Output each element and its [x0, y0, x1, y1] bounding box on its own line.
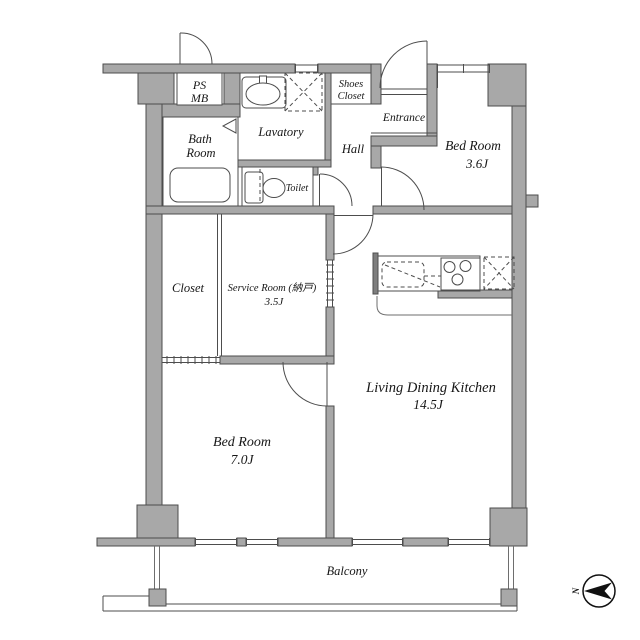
room-label-bedroom36-1: Bed Room [445, 138, 501, 153]
bathtub [170, 168, 230, 202]
bedroom7-door [283, 362, 327, 406]
room-label-hall: Hall [341, 142, 365, 156]
wall-toilet-right [313, 167, 318, 175]
floorplan-page: PS MB Bath Room Lavatory Shoes Closet Ha… [0, 0, 640, 640]
refrigerator-space [484, 257, 514, 289]
room-label-lavatory: Lavatory [257, 125, 304, 139]
room-label-shoes-1: Shoes [339, 79, 364, 90]
room-label-bedroom7-2: 7.0J [231, 452, 255, 467]
closet-sliding-door [162, 356, 220, 364]
washing-machine-space [285, 73, 322, 111]
wall-left [146, 104, 162, 538]
closet-divider [218, 214, 222, 356]
bedroom36-door [381, 167, 424, 210]
floorplan-drawing: PS MB Bath Room Lavatory Shoes Closet Ha… [0, 0, 640, 640]
balcony-structure [103, 546, 517, 611]
wall-lavatory-right [325, 73, 331, 167]
balcony-post-right [501, 589, 517, 606]
wall-bottom-c [278, 538, 352, 546]
kitchen-counter [373, 253, 514, 294]
washbasin-bowl [246, 83, 280, 105]
window-ldk-b [448, 538, 490, 546]
room-label-mb: MB [190, 91, 209, 105]
wall-right [512, 106, 526, 538]
balcony-post-left [149, 589, 166, 606]
entrance-door [380, 41, 427, 95]
room-label-entrance: Entrance [382, 112, 425, 124]
window-ldk-a [352, 538, 403, 546]
wall-block-top-left [138, 73, 174, 104]
wall-top-left [103, 64, 295, 73]
wall-lavatory-bottom [238, 160, 331, 167]
stove [441, 258, 480, 290]
wall-entrance-left-jamb [371, 64, 381, 104]
wall-divider-lower [326, 406, 334, 538]
kitchen-floor-line [377, 296, 512, 315]
wall-bottom-a [97, 538, 195, 546]
window-bedroom7-b [246, 538, 278, 546]
toilet-door [320, 174, 353, 206]
room-label-bath-1: Bath [188, 132, 212, 146]
north-label: N [571, 587, 581, 595]
wall-entrance-bottom [371, 136, 437, 146]
room-label-closet: Closet [172, 281, 204, 295]
wall-divider-mid [326, 307, 334, 362]
wall-corner-bottom-right [490, 508, 527, 546]
hall-ldk-door [333, 214, 373, 254]
wall-bedroom7-top [220, 356, 334, 364]
wall-top-right [318, 64, 371, 73]
room-label-bedroom7-1: Bed Room [213, 435, 271, 450]
window-lavatory-top [295, 64, 318, 73]
north-compass-icon: N [571, 575, 615, 607]
room-label-bedroom36-2: 3.6J [465, 156, 489, 171]
windows [195, 64, 490, 546]
service-room-sliding-door [326, 260, 334, 307]
wall-mid-right [373, 206, 526, 214]
room-label-service-2: 3.5J [264, 296, 285, 308]
room-label-service-1: Service Room (納戸) [228, 282, 317, 294]
window-bedroom36 [437, 64, 490, 88]
kitchen-counter-end [373, 253, 378, 294]
wall-right-tab [526, 195, 538, 207]
window-bedroom7-a [195, 538, 237, 546]
wall-entrance-right [427, 64, 437, 136]
wall-bottom-b [237, 538, 246, 546]
room-label-toilet: Toilet [286, 183, 309, 194]
wall-bottom-d [403, 538, 448, 546]
wall-hall-bedroom [371, 146, 381, 168]
wall-mid-left [146, 206, 334, 214]
wall-divider-upper [326, 214, 334, 260]
room-label-balcony: Balcony [327, 564, 368, 578]
room-label-ps: PS [192, 78, 206, 92]
room-label-ldk-1: Living Dining Kitchen [365, 380, 496, 396]
room-label-shoes-2: Closet [338, 91, 366, 102]
room-label-bath-2: Room [185, 146, 215, 160]
psmb-door [180, 33, 212, 64]
sliding-doors [162, 260, 334, 364]
room-label-ldk-2: 14.5J [413, 397, 444, 412]
wall-corner-top-right [488, 64, 526, 106]
